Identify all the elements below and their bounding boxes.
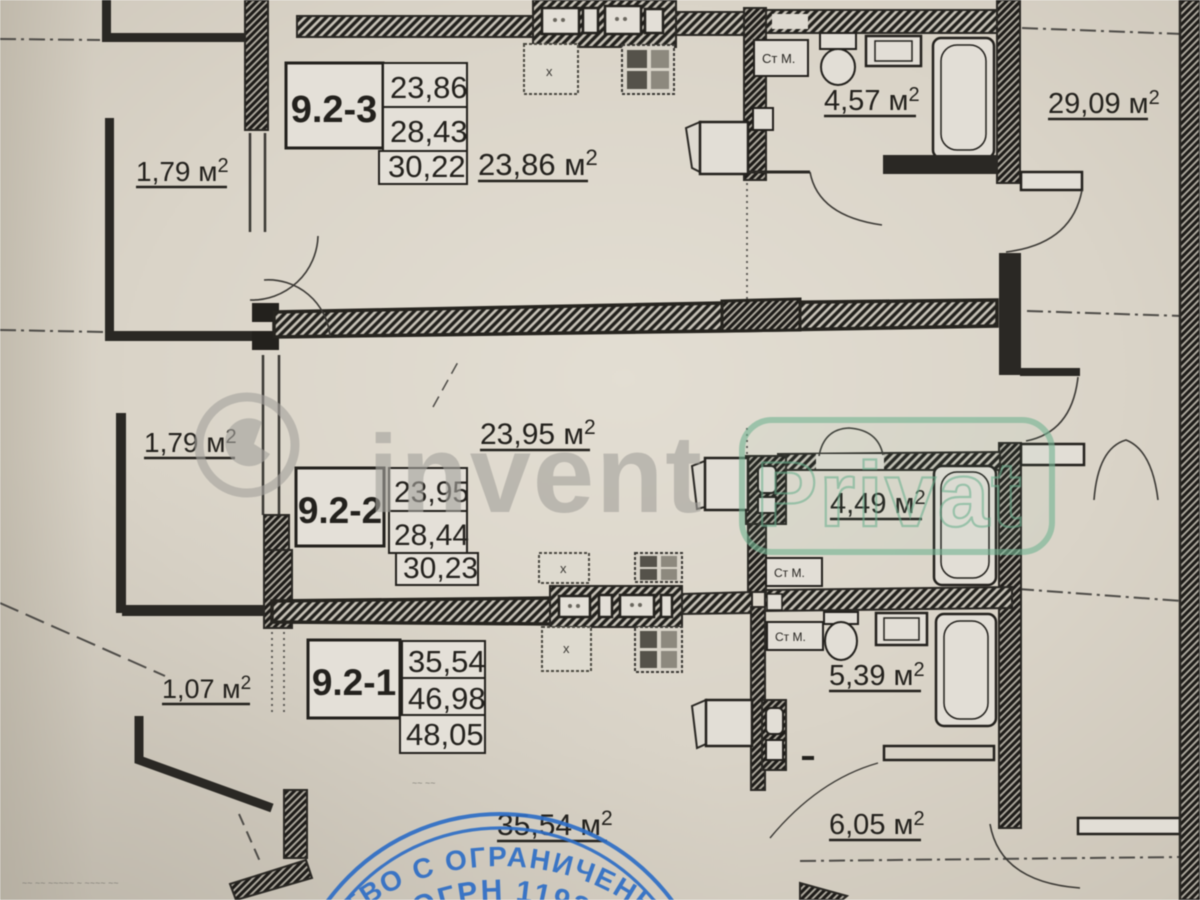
svg-text:~~ ~~ ~~~~~ ~ ~~~~ ~~: ~~ ~~ ~~~~~ ~ ~~~~ ~~	[22, 878, 119, 888]
svg-text:35,54: 35,54	[408, 644, 486, 679]
svg-text:4,57 м2: 4,57 м2	[824, 84, 920, 117]
svg-text:48,05: 48,05	[406, 717, 484, 752]
svg-text:46,98: 46,98	[408, 681, 486, 716]
svg-text:Ст М.: Ст М.	[775, 630, 806, 644]
svg-text:30,22: 30,22	[388, 149, 466, 184]
svg-text:x: x	[563, 641, 570, 656]
svg-text:invent: invent	[368, 413, 704, 536]
svg-text:1,07 м2: 1,07 м2	[162, 673, 251, 704]
svg-text:29,09 м2: 29,09 м2	[1048, 87, 1160, 120]
svg-text:~~ ~~: ~~ ~~	[412, 778, 436, 788]
svg-text:Ст М.: Ст М.	[762, 51, 795, 66]
svg-text:x: x	[546, 64, 553, 79]
svg-text:x: x	[560, 561, 567, 576]
svg-text:Privat: Privat	[756, 444, 1024, 546]
svg-text:5,39 м2: 5,39 м2	[829, 659, 925, 692]
svg-text:9.2-3: 9.2-3	[291, 89, 378, 131]
svg-text:9.2-1: 9.2-1	[312, 662, 396, 703]
svg-text:6,05 м2: 6,05 м2	[829, 808, 925, 841]
svg-text:1,79 м2: 1,79 м2	[136, 155, 229, 187]
svg-text:30,23: 30,23	[403, 552, 478, 585]
svg-text:1,79 м2: 1,79 м2	[144, 426, 237, 458]
svg-text:Ст М.: Ст М.	[774, 566, 805, 580]
svg-text:28,43: 28,43	[390, 114, 468, 149]
svg-text:23,86: 23,86	[390, 70, 468, 105]
svg-text:23,86 м2: 23,86 м2	[478, 145, 598, 182]
